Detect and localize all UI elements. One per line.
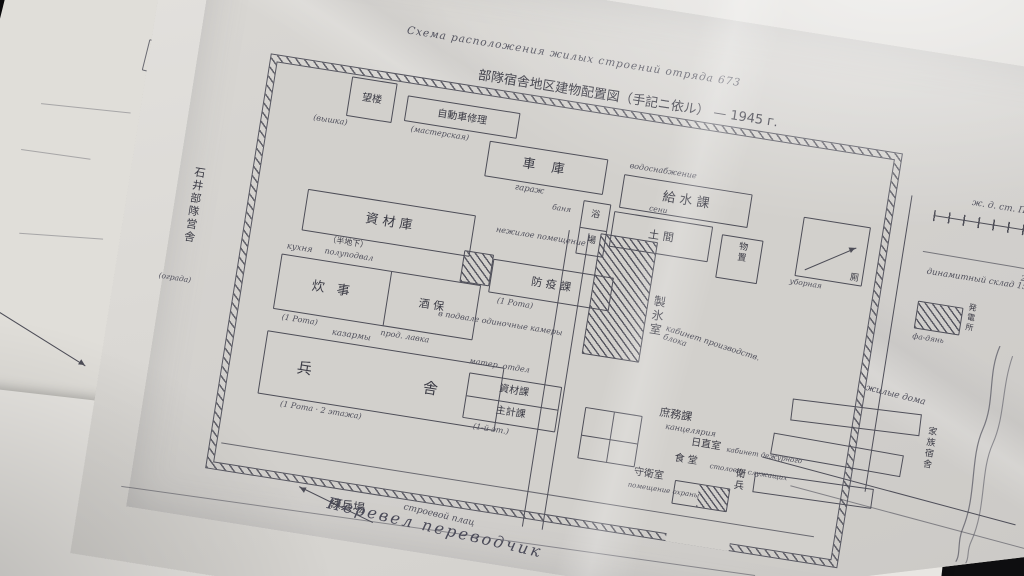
sketch-arrow <box>0 297 86 367</box>
photo-scene: Схема расположения жилых строений отряда… <box>0 0 1024 576</box>
watchtower-label-ja: 望楼 <box>361 92 382 106</box>
building-latrine: 厠 <box>794 217 871 287</box>
scribble-line <box>21 149 90 160</box>
garage-label-ja: 車 庫 <box>521 156 571 178</box>
water-dept-label-ja: 給 水 課 <box>661 189 710 211</box>
shed-label-ja: 物置 <box>734 241 747 264</box>
latrine-arrow <box>805 248 857 271</box>
scribble-line <box>19 233 103 240</box>
building-shed: 物置 <box>715 234 763 284</box>
building-watchtower: 望楼 <box>346 76 398 123</box>
bath-label-ja-top: 浴 <box>580 201 610 231</box>
scribble-line <box>41 103 131 113</box>
repair-shop-label-ja: 自動車修理 <box>437 108 488 127</box>
latrine-label-ja: 厠 <box>849 273 859 284</box>
epidemic-dept-label-ja: 防 疫 課 <box>530 275 572 294</box>
document-paper: Схема расположения жилых строений отряда… <box>70 0 1024 576</box>
materials-store-label-ja: 資 材 庫 <box>364 211 413 233</box>
building-window-box <box>577 407 642 467</box>
